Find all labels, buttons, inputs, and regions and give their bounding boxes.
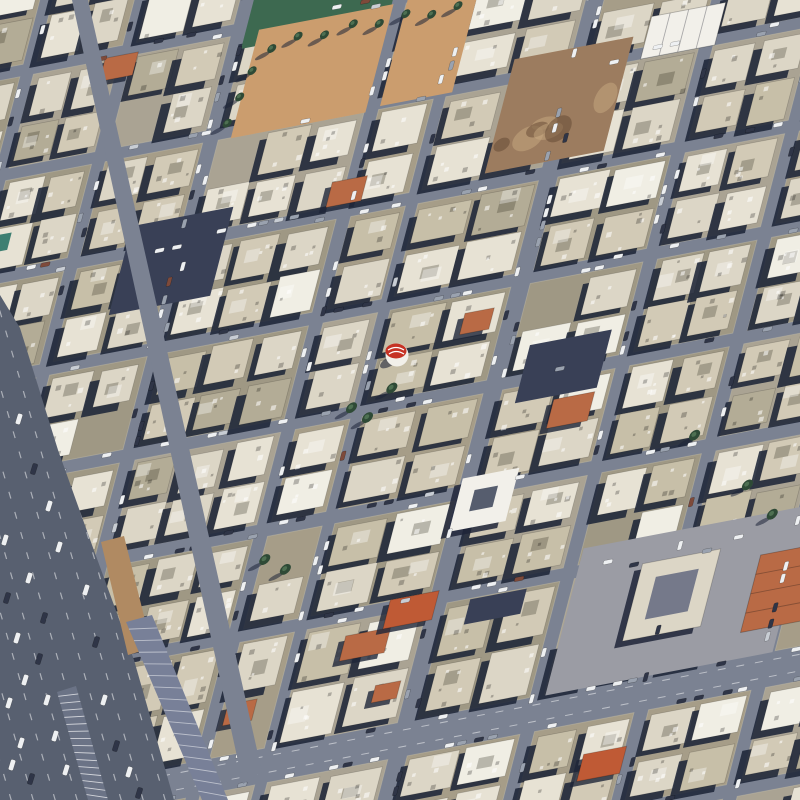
satellite-map[interactable] — [0, 0, 800, 800]
map-canvas[interactable] — [0, 0, 800, 800]
